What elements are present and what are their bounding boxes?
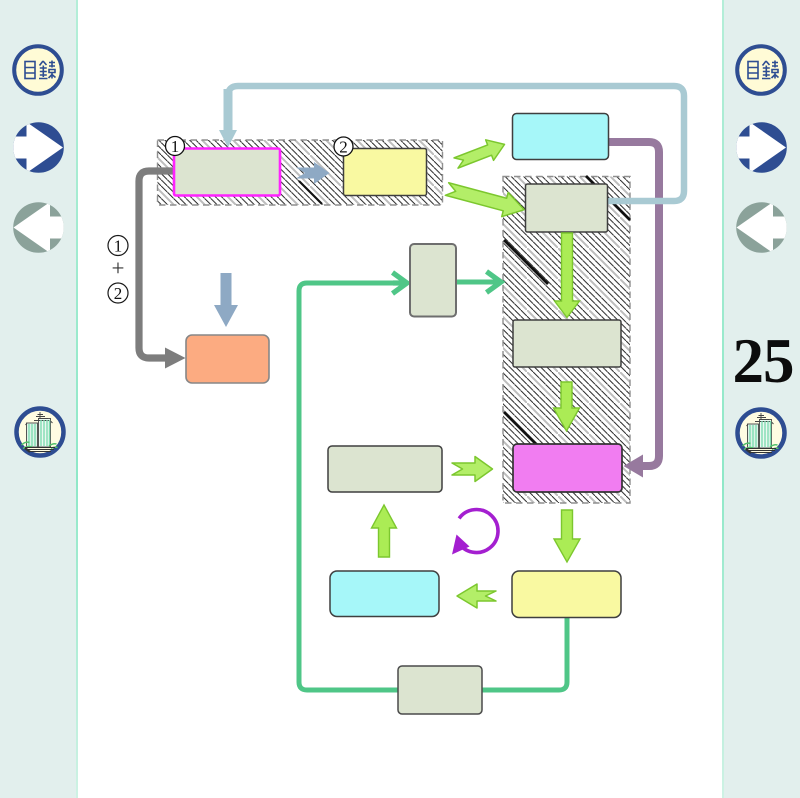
svg-text:2: 2 [339,138,348,157]
svg-text:1: 1 [171,137,180,156]
svg-text:2: 2 [114,284,123,303]
svg-text:1: 1 [114,237,123,256]
svg-text:+: + [112,256,125,281]
